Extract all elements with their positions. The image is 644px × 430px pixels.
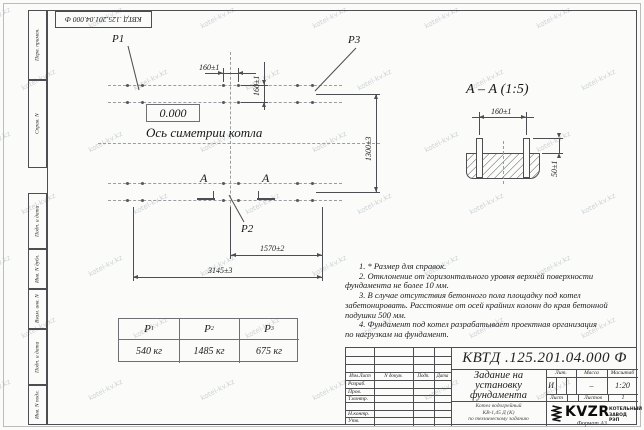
margin-label: Взам. инв. N [29, 290, 46, 328]
anchor-bolt-dot [237, 182, 240, 185]
tb-scale-header: Масштаб [607, 369, 638, 377]
elevation-value: 0.000 [160, 106, 187, 121]
plan-label-p1: P1 [112, 33, 124, 45]
anchor-bolt-dot [141, 199, 144, 202]
corner-designation-stamp: КВТД .125.201.04.000 Ф [55, 11, 152, 28]
section-title: А – А (1:5) [466, 82, 529, 98]
tb-lit-value: И [546, 377, 556, 394]
load-table-header: P2 [179, 319, 239, 339]
load-table-header: P3 [239, 319, 299, 339]
tb-doc-title: Задание на установку фундамента [451, 371, 546, 401]
logo-subtext-1: КОТЕЛЬНЫЙ [609, 407, 642, 412]
anchor-bolt-dot [237, 199, 240, 202]
anchor-bolt-dot [296, 84, 299, 87]
anchor-bolt-dot [126, 101, 129, 104]
elevation-mark-box: 0.000 [146, 104, 200, 122]
tb-sheets-value: 1 [608, 394, 638, 401]
margin-label: Справ. N [29, 81, 46, 167]
anchor-bolt-dot [296, 101, 299, 104]
spring-icon [551, 405, 562, 422]
tb-row-tkontr: Т.контр. [348, 395, 374, 402]
anchor-bolt-dot [126, 84, 129, 87]
tb-mass-header: Масса [576, 369, 607, 377]
drawing-sheet: kotel-kv.kzkotel-kv.kzkotel-kv.kzkotel-k… [0, 0, 644, 430]
anchor-bolt-dot [141, 101, 144, 104]
anchor-bolt-dot [222, 199, 225, 202]
tb-scale-value: 1:20 [607, 377, 638, 394]
load-table-header: P1 [119, 319, 179, 339]
logo-subtext-2: ЗАВОД РЭП [609, 413, 638, 423]
anchor-bolt-dot [222, 84, 225, 87]
tb-sheet-label: Лист [546, 394, 567, 401]
tb-col-izm: Изм.Лист [346, 372, 374, 380]
tb-col-doc: N докум. [374, 372, 413, 380]
section-center-axis [503, 141, 504, 184]
format-label: Формат А3 [577, 421, 607, 427]
plan-label-p3: P3 [348, 34, 360, 46]
tb-row-razrab: Разраб. [348, 380, 374, 388]
load-table-value: 675 кг [239, 339, 299, 363]
tb-col-podp: Подп. [413, 372, 434, 380]
margin-box-perv-primen: Перв. примен. [28, 10, 47, 80]
margin-label: Перв. примен. [29, 11, 46, 79]
margin-box-vzam-inv: Взам. инв. N [28, 289, 47, 329]
load-table-value: 1485 кг [179, 339, 239, 363]
corner-designation-text: КВТД .125.201.04.000 Ф [65, 15, 142, 24]
margin-label: Инв. N подл. [29, 386, 46, 424]
anchor-bolt-dot [237, 101, 240, 104]
anchor-bolt-right [523, 138, 530, 178]
symmetry-axis-label: Ось симетрии котла [146, 125, 262, 141]
margin-label: Подп. и дата [29, 330, 46, 384]
anchor-bolt-dot [311, 101, 314, 104]
load-table-value: 540 кг [119, 339, 179, 363]
logo-text: KVZR [565, 404, 610, 420]
anchor-bolt-left [476, 138, 483, 178]
margin-box-inv-dubl: Инв. N дубл. [28, 249, 47, 289]
anchor-bolt-dot [141, 182, 144, 185]
anchor-bolt-dot [311, 199, 314, 202]
title-block: Изм.Лист N докум. Подп. Дата Разраб. Про… [345, 347, 637, 425]
anchor-bolt-dot [311, 84, 314, 87]
tb-designation: КВТД .125.201.04.000 Ф [451, 348, 638, 369]
anchor-bolt-dot [296, 182, 299, 185]
notes-block: 1. * Размер для справок. 2. Отклонение о… [345, 262, 635, 340]
boiler-symmetry-axis [98, 143, 380, 144]
tb-row-utv: Утв. [348, 417, 374, 425]
tb-sheets-label: Листов [578, 394, 608, 401]
anchor-bolt-dot [296, 199, 299, 202]
tb-lit-header: Лит. [546, 369, 576, 377]
anchor-bolt-dot [126, 199, 129, 202]
anchor-bolt-dot [311, 182, 314, 185]
note-line: по нагрузкам на фундамент. [345, 330, 635, 340]
anchor-bolt-dot [222, 182, 225, 185]
margin-box-inv-podl: Инв. N подл. [28, 385, 47, 425]
margin-label: Подп. и дата [29, 194, 46, 248]
tb-product-name: Котел водогрейный КВ-1,45 Д (К) по техни… [451, 403, 546, 425]
load-table: P1 P2 P3 540 кг 1485 кг 675 кг [118, 318, 298, 362]
tb-row-nkontr: Н.контр. [348, 410, 374, 417]
margin-label: Инв. N дубл. [29, 250, 46, 288]
anchor-bolt-dot [141, 84, 144, 87]
margin-box-sprav-n: Справ. N [28, 80, 47, 168]
anchor-bolt-dot [222, 101, 225, 104]
anchor-bolt-dot [237, 84, 240, 87]
tb-row-prov: Пров. [348, 388, 374, 395]
anchor-bolt-dot [126, 182, 129, 185]
margin-box-podp-data-2: Подп. и дата [28, 329, 47, 385]
margin-box-podp-data-1: Подп. и дата [28, 193, 47, 249]
tb-mass-value: – [576, 377, 607, 394]
plan-label-p2: P2 [241, 223, 253, 235]
tb-col-data: Дата [434, 372, 451, 380]
